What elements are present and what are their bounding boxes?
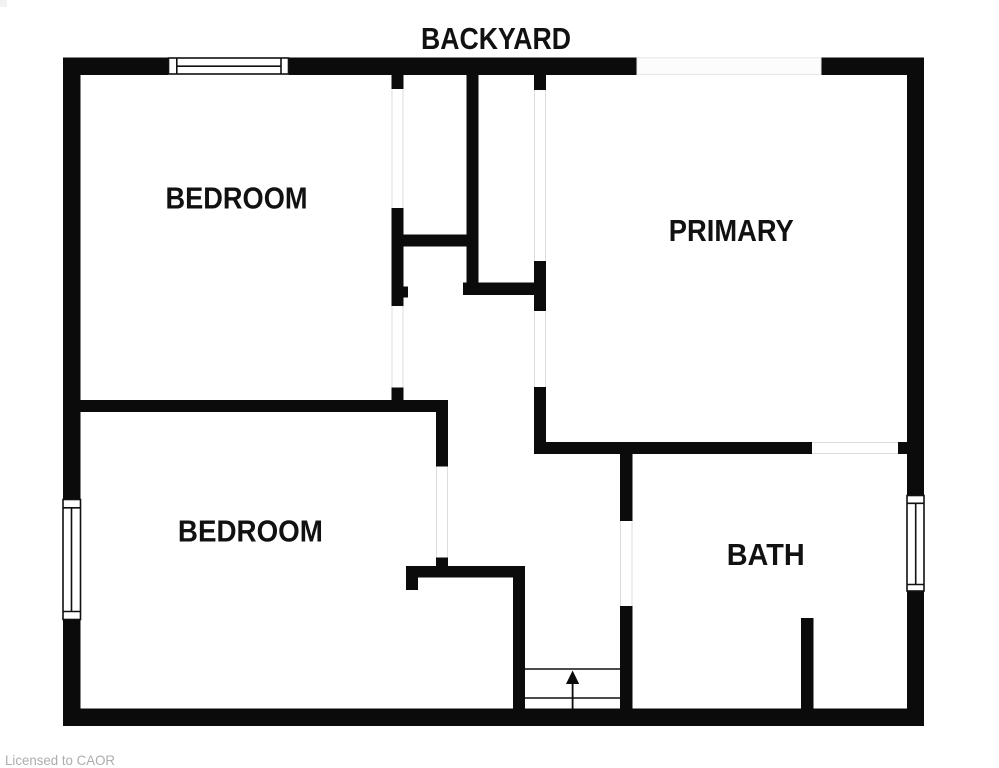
svg-text:Licensed to CAOR: Licensed to CAOR xyxy=(5,752,115,768)
svg-text:PRIMARY: PRIMARY xyxy=(669,213,794,248)
svg-text:BACKYARD: BACKYARD xyxy=(421,21,571,56)
svg-text:BEDROOM: BEDROOM xyxy=(166,181,308,216)
svg-text:BATH: BATH xyxy=(727,537,805,572)
svg-text:BEDROOM: BEDROOM xyxy=(178,514,323,549)
